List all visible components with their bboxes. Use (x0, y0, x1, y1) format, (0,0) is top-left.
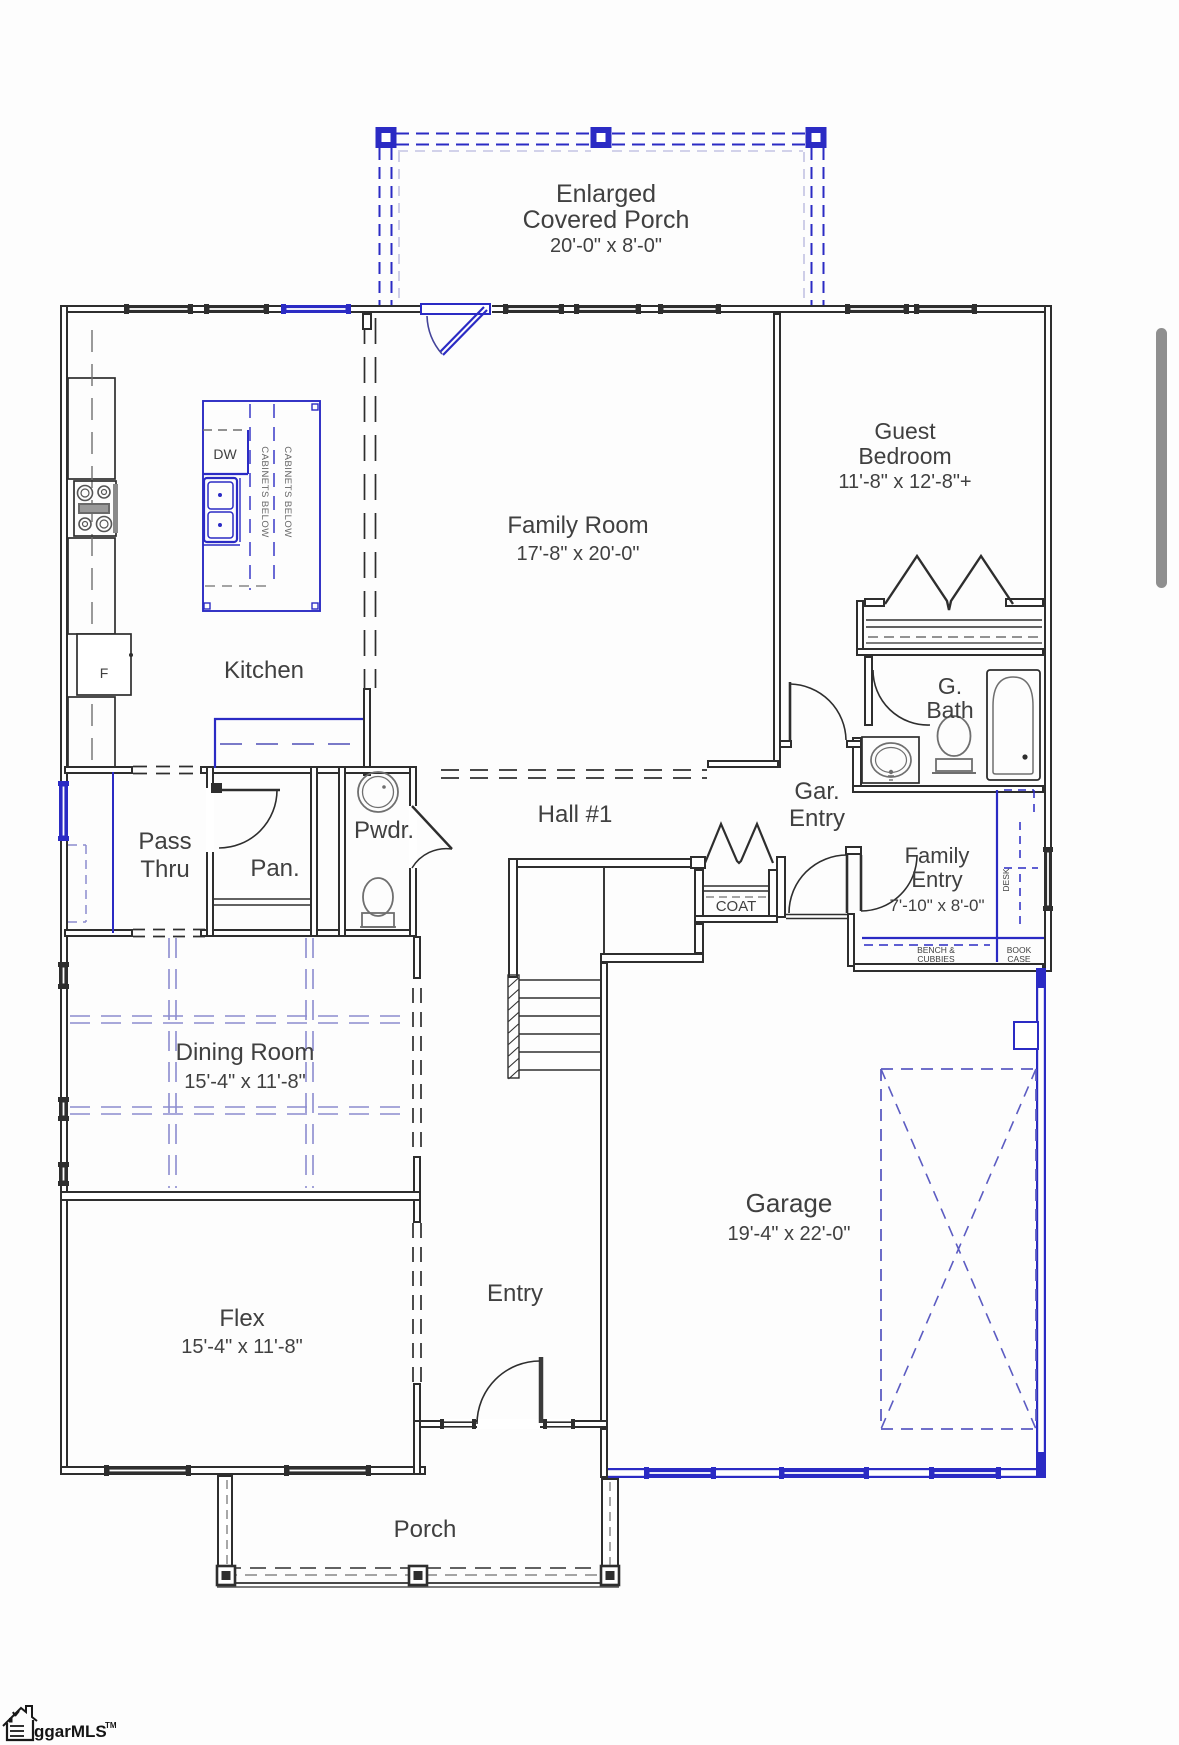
svg-text:CABINETS BELOW: CABINETS BELOW (259, 446, 270, 537)
svg-text:Kitchen: Kitchen (224, 657, 304, 684)
svg-text:Gar.: Gar. (794, 778, 839, 805)
svg-text:11'-8" x 12'-8"+: 11'-8" x 12'-8"+ (838, 471, 971, 493)
svg-text:COAT: COAT (716, 898, 757, 915)
svg-text:Family: Family (905, 843, 970, 868)
svg-text:Pan.: Pan. (250, 855, 299, 882)
svg-text:17'-8" x 20'-0": 17'-8" x 20'-0" (516, 543, 639, 565)
svg-text:ggarMLS: ggarMLS (34, 1722, 107, 1741)
svg-text:Pass: Pass (138, 828, 191, 855)
svg-text:Pwdr.: Pwdr. (354, 817, 414, 844)
svg-text:15'-4" x 11'-8": 15'-4" x 11'-8" (181, 1336, 303, 1358)
svg-text:19'-4" x 22'-0": 19'-4" x 22'-0" (727, 1223, 850, 1245)
svg-text:Covered Porch: Covered Porch (523, 206, 690, 234)
svg-text:DESK: DESK (1001, 868, 1011, 891)
svg-text:Garage: Garage (746, 1188, 833, 1218)
svg-text:Enlarged: Enlarged (556, 180, 656, 208)
svg-text:Flex: Flex (219, 1305, 264, 1332)
svg-text:G.: G. (938, 673, 962, 699)
svg-text:Entry: Entry (789, 805, 845, 832)
svg-text:Thru: Thru (140, 856, 189, 883)
svg-text:CUBBIES: CUBBIES (917, 954, 955, 964)
svg-text:Family Room: Family Room (507, 512, 648, 539)
svg-text:Porch: Porch (394, 1516, 457, 1543)
svg-text:7'-10" x 8'-0": 7'-10" x 8'-0" (889, 896, 984, 915)
svg-text:TM: TM (105, 1721, 117, 1730)
svg-text:20'-0" x 8'-0": 20'-0" x 8'-0" (550, 235, 662, 257)
svg-text:CABINETS BELOW: CABINETS BELOW (282, 446, 293, 537)
svg-text:F: F (100, 665, 109, 681)
svg-text:Entry: Entry (911, 867, 962, 892)
svg-text:Hall #1: Hall #1 (538, 801, 613, 828)
svg-text:15'-4" x 11'-8": 15'-4" x 11'-8" (184, 1071, 306, 1093)
svg-text:Entry: Entry (487, 1280, 543, 1307)
svg-text:DW: DW (213, 446, 237, 462)
svg-text:Bedroom: Bedroom (858, 443, 951, 469)
svg-text:Guest: Guest (874, 418, 936, 444)
svg-text:Bath: Bath (926, 697, 973, 723)
svg-text:Dining Room: Dining Room (176, 1039, 315, 1066)
svg-text:CASE: CASE (1007, 954, 1030, 964)
